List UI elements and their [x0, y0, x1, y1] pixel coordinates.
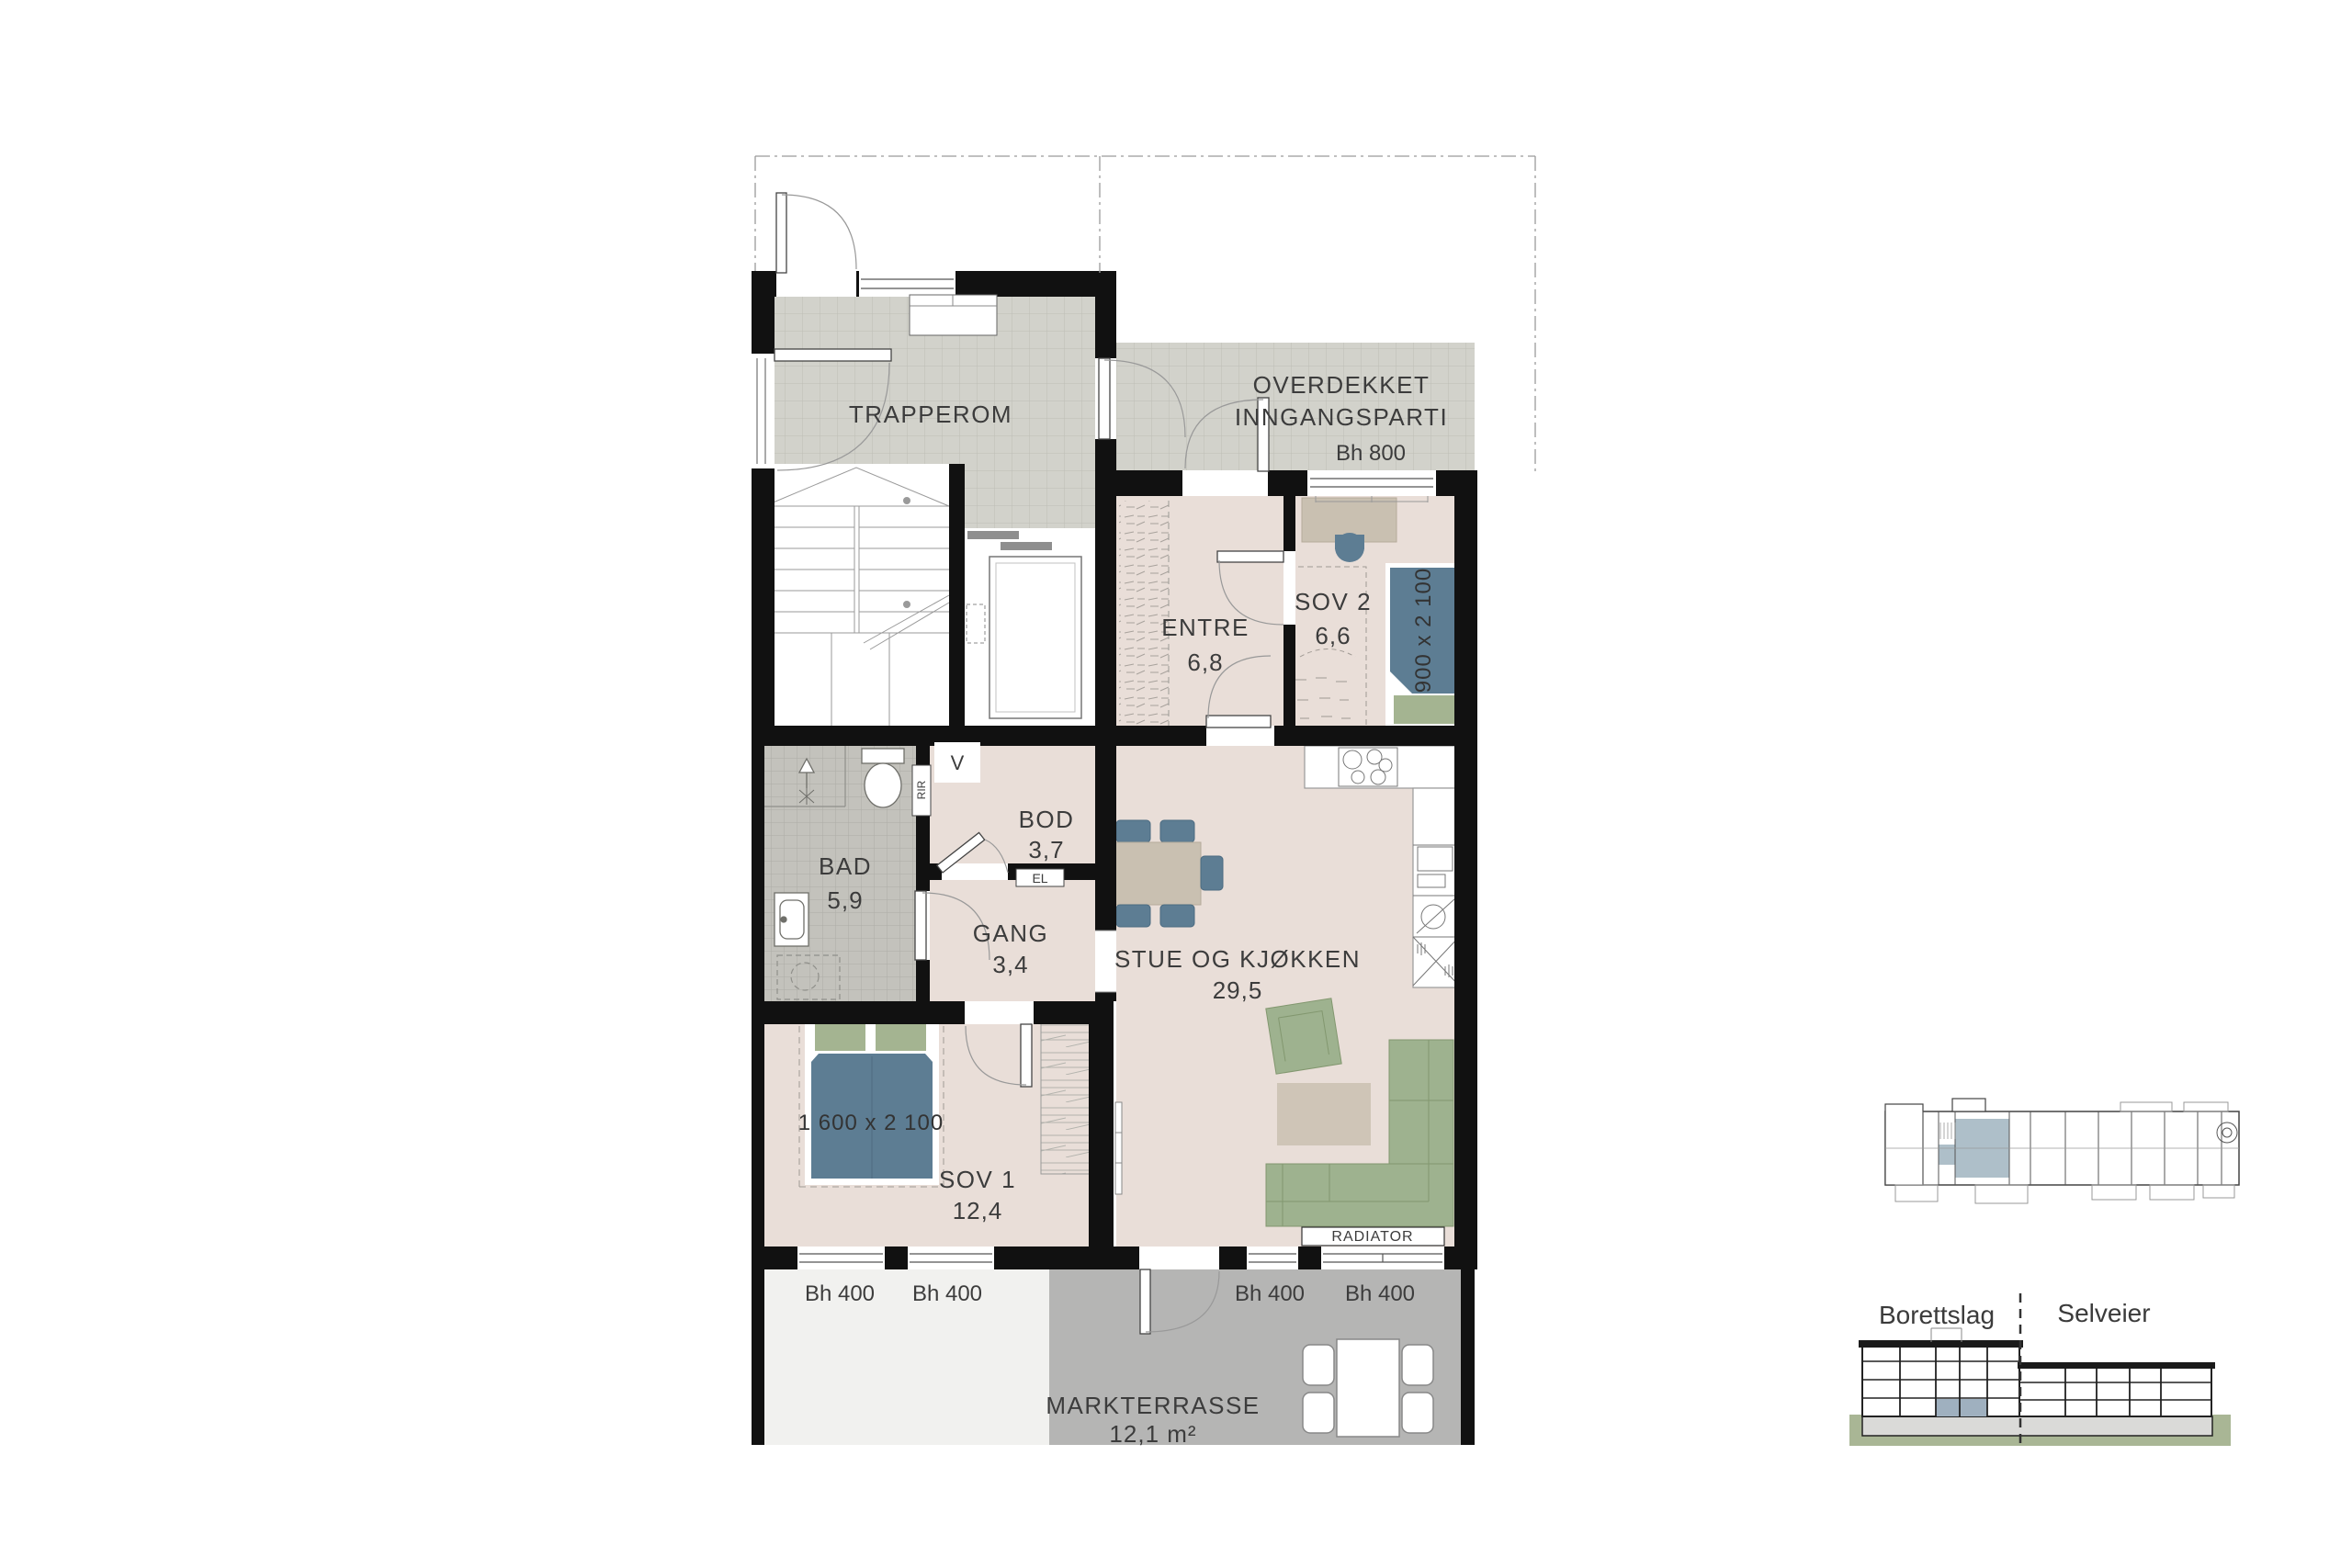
desk-chair — [1335, 533, 1364, 562]
terrace-chair — [1402, 1393, 1433, 1433]
terrace-chair — [1402, 1345, 1433, 1385]
terrace-chair — [1303, 1345, 1334, 1385]
window-height-label: Bh 400 — [1235, 1281, 1305, 1306]
bed-pillow — [815, 1021, 865, 1051]
dining-table — [1109, 842, 1201, 905]
elevator — [965, 528, 1095, 741]
kitchen-counter-top — [1305, 746, 1459, 788]
room-label-overdekket-line2: INNGANGSPARTI — [1235, 403, 1448, 431]
floor-plan-drawing: TRAPPEROM OVERDEKKET INNGANGSPARTI Bh 80… — [0, 0, 2352, 1568]
window-niche-trapperom — [910, 295, 997, 335]
room-area-entre: 6,8 — [1187, 649, 1223, 676]
building-section: Borettslag Selveier — [1849, 1293, 2231, 1450]
bathroom-sink — [775, 893, 808, 946]
duct-label: RIR — [915, 780, 928, 799]
radiator-label: RADIATOR — [1331, 1229, 1413, 1245]
room-area-bad: 5,9 — [827, 886, 863, 914]
room-label-overdekket-line1: OVERDEKKET — [1253, 371, 1430, 399]
bed-sov1 — [805, 1015, 939, 1185]
coffee-table — [1277, 1083, 1371, 1145]
elevator-door-panel — [1001, 542, 1052, 550]
room-area-sov1: 12,4 — [953, 1197, 1003, 1224]
section-right-building — [2018, 1362, 2215, 1416]
dining-chair — [1160, 905, 1194, 927]
stairs — [764, 464, 949, 739]
room-label-gang: GANG — [973, 919, 1049, 947]
window-stue-south-1 — [1247, 1247, 1298, 1269]
room-area-markterrasse: 12,1 m² — [1109, 1420, 1196, 1448]
elevator-door-panel — [967, 531, 1019, 539]
bed-size-label-sov2: 900 x 2 100 — [1411, 568, 1436, 693]
room-label-sov1: SOV 1 — [939, 1166, 1016, 1193]
window-height-label: Bh 400 — [912, 1281, 982, 1306]
sov1-wall-radiator — [1115, 1102, 1122, 1194]
terrace-table — [1337, 1339, 1399, 1437]
floor-plan-page: TRAPPEROM OVERDEKKET INNGANGSPARTI Bh 80… — [0, 0, 2352, 1568]
bed-size-label-sov1: 1 600 x 2 100 — [798, 1111, 944, 1135]
section-highlight-unit — [1936, 1399, 1987, 1416]
dining-chair — [1201, 856, 1223, 890]
window-trapperom-top — [859, 271, 955, 297]
site-key-plan — [1885, 1099, 2239, 1203]
toilet — [862, 749, 904, 807]
sov1-wardrobe — [1041, 1020, 1093, 1174]
bed-pillow — [1394, 695, 1454, 724]
window-sov1-south-2 — [908, 1247, 994, 1269]
opening-gang-to-stue — [1095, 931, 1116, 992]
bed-pillow — [876, 1021, 926, 1051]
window-height-label-overdekket: Bh 800 — [1336, 441, 1406, 466]
electrical-label: EL — [1032, 871, 1047, 886]
armchair — [1266, 998, 1341, 1074]
dining-chair — [1160, 820, 1194, 842]
room-label-stue: STUE OG KJØKKEN — [1114, 945, 1361, 973]
room-label-entre: ENTRE — [1161, 614, 1249, 641]
room-label-sov2: SOV 2 — [1295, 588, 1372, 615]
room-area-stue: 29,5 — [1213, 976, 1263, 1004]
ventilation-label: V — [951, 751, 965, 774]
dining-chair — [1116, 820, 1150, 842]
section-label-borettslag: Borettslag — [1879, 1301, 1995, 1329]
window-height-label: Bh 400 — [1345, 1281, 1415, 1306]
room-area-bod: 3,7 — [1028, 836, 1064, 863]
elevator-car — [989, 557, 1081, 718]
room-label-trapperom: TRAPPEROM — [849, 400, 1012, 428]
window-stue-south-2 — [1321, 1247, 1444, 1269]
room-label-bod: BOD — [1019, 806, 1075, 833]
section-callout — [1931, 1328, 1962, 1342]
terrace-chair — [1303, 1393, 1334, 1433]
section-basement — [1862, 1416, 2212, 1436]
door-porch — [776, 193, 856, 297]
section-left-building — [1859, 1340, 2023, 1416]
section-label-selveier: Selveier — [2057, 1299, 2150, 1327]
window-sov1-south-1 — [797, 1247, 885, 1269]
dining-chair — [1116, 905, 1150, 927]
window-height-label: Bh 400 — [805, 1281, 875, 1306]
room-label-bad: BAD — [819, 852, 872, 880]
room-area-sov2: 6,6 — [1315, 622, 1351, 649]
room-area-gang: 3,4 — [992, 951, 1028, 978]
room-label-markterrasse: MARKTERRASSE — [1046, 1392, 1260, 1419]
